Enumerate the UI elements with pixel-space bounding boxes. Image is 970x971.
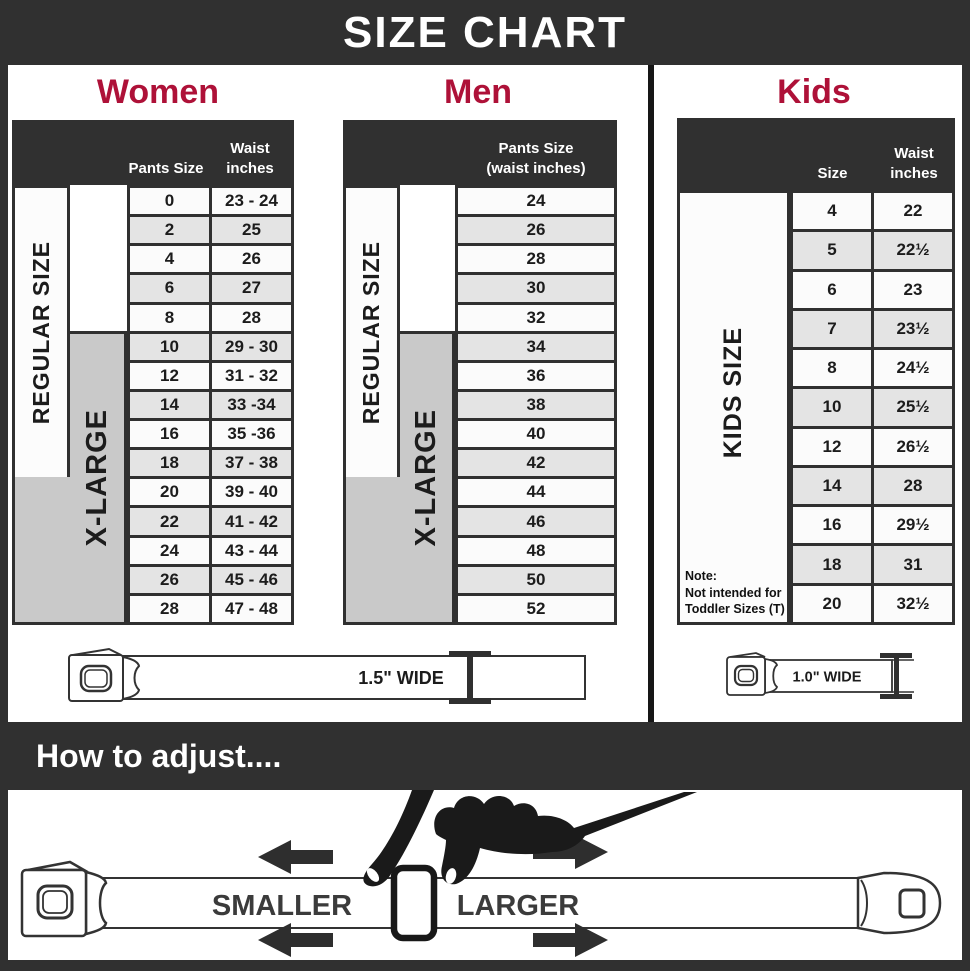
women-table-header: Pants Size Waist inches xyxy=(12,120,294,185)
women-size-table: Pants Size Waist inches REGULAR SIZE X-L… xyxy=(12,120,294,625)
size-cell: 44 xyxy=(458,479,614,505)
size-cell: 7 xyxy=(793,311,871,347)
size-cell: 40 xyxy=(458,421,614,447)
waist-cell: 31 xyxy=(874,546,952,582)
men-pants-size-header: Pants Size (waist inches) xyxy=(455,139,617,178)
kids-size-range-label: KIDS SIZE Note: Not intended for Toddler… xyxy=(677,190,790,625)
size-cell: 42 xyxy=(458,450,614,476)
waist-cell: 23½ xyxy=(874,311,952,347)
size-cell: 2 xyxy=(130,217,209,243)
kids-waist-header: Waist inches xyxy=(875,144,953,183)
belt-adjuster-slider xyxy=(394,868,434,938)
belt-tip xyxy=(858,873,940,933)
size-cell: 12 xyxy=(793,429,871,465)
size-cell: 4 xyxy=(130,246,209,272)
waist-cell: 23 xyxy=(874,272,952,308)
section-divider xyxy=(648,65,654,722)
kids-section: Kids Size Waist inches KIDS SIZE Note: N… xyxy=(654,65,962,722)
waist-cell: 47 - 48 xyxy=(212,596,291,622)
waist-cell: 33 -34 xyxy=(212,392,291,418)
size-cell: 14 xyxy=(793,468,871,504)
kids-size-grid: 422522½623723½824½1025½1226½14281629½183… xyxy=(790,190,955,625)
kids-table-body: KIDS SIZE Note: Not intended for Toddler… xyxy=(677,190,955,625)
waist-cell: 29½ xyxy=(874,507,952,543)
men-table-body: REGULAR SIZE X-LARGE 2426283032343638404… xyxy=(343,185,617,625)
size-cell: 16 xyxy=(793,507,871,543)
size-cell: 48 xyxy=(458,538,614,564)
size-cell: 16 xyxy=(130,421,209,447)
larger-label: LARGER xyxy=(438,888,598,924)
page-title: SIZE CHART xyxy=(0,0,970,65)
waist-cell: 32½ xyxy=(874,586,952,622)
waist-cell: 25 xyxy=(212,217,291,243)
size-cell: 38 xyxy=(458,392,614,418)
women-waist-header: Waist inches xyxy=(208,139,292,178)
women-size-range-labels: REGULAR SIZE X-LARGE xyxy=(12,185,127,625)
size-cell: 24 xyxy=(458,188,614,214)
seatbelt-buckle-icon xyxy=(727,653,777,695)
size-cell: 20 xyxy=(130,479,209,505)
size-cell: 28 xyxy=(130,596,209,622)
size-cell: 18 xyxy=(793,546,871,582)
adult-belt-width-label: 1.5" WIDE xyxy=(358,668,444,688)
waist-cell: 28 xyxy=(874,468,952,504)
regular-size-label: REGULAR SIZE xyxy=(28,241,55,424)
kids-size-label: KIDS SIZE xyxy=(719,327,748,458)
size-cell: 52 xyxy=(458,596,614,622)
size-cell: 34 xyxy=(458,334,614,360)
kids-belt-illustration: 1.0" WIDE xyxy=(722,650,917,702)
kids-size-table: Size Waist inches KIDS SIZE Note: Not in… xyxy=(677,118,955,625)
size-cell: 0 xyxy=(130,188,209,214)
kids-note: Note: Not intended for Toddler Sizes (T) xyxy=(685,568,787,617)
waist-cell: 28 xyxy=(212,305,291,331)
size-cell: 6 xyxy=(793,272,871,308)
waist-cell: 23 - 24 xyxy=(212,188,291,214)
adjust-illustration-panel: SMALLER LARGER xyxy=(8,790,962,960)
adult-belt-illustration: 1.5" WIDE xyxy=(63,643,593,711)
waist-cell: 31 - 32 xyxy=(212,363,291,389)
smaller-label: SMALLER xyxy=(194,888,370,924)
adult-section: Women Men Pants Size Waist inches REGULA… xyxy=(8,65,648,722)
size-cell: 8 xyxy=(793,350,871,386)
size-cell: 18 xyxy=(130,450,209,476)
waist-cell: 29 - 30 xyxy=(212,334,291,360)
size-cell: 50 xyxy=(458,567,614,593)
waist-cell: 25½ xyxy=(874,389,952,425)
men-size-range-labels: REGULAR SIZE X-LARGE xyxy=(343,185,455,625)
size-cell: 14 xyxy=(130,392,209,418)
waist-cell: 39 - 40 xyxy=(212,479,291,505)
size-cell: 24 xyxy=(130,538,209,564)
waist-cell: 45 - 46 xyxy=(212,567,291,593)
regular-size-label: REGULAR SIZE xyxy=(358,241,385,424)
size-cell: 46 xyxy=(458,508,614,534)
xlarge-label: X-LARGE xyxy=(410,409,443,547)
waist-cell: 26 xyxy=(212,246,291,272)
men-table-header: Pants Size (waist inches) xyxy=(343,120,617,185)
waist-cell: 24½ xyxy=(874,350,952,386)
size-cell: 36 xyxy=(458,363,614,389)
men-heading: Men xyxy=(328,73,628,112)
size-cell: 26 xyxy=(458,217,614,243)
size-cell: 12 xyxy=(130,363,209,389)
kids-size-header: Size xyxy=(790,164,875,184)
size-cell: 10 xyxy=(130,334,209,360)
size-cell: 26 xyxy=(130,567,209,593)
size-cell: 30 xyxy=(458,275,614,301)
size-cell: 8 xyxy=(130,305,209,331)
arrow-left-icon xyxy=(258,840,333,874)
size-cell: 6 xyxy=(130,275,209,301)
kids-belt-width-label: 1.0" WIDE xyxy=(793,670,862,686)
waist-cell: 26½ xyxy=(874,429,952,465)
kids-table-header: Size Waist inches xyxy=(677,118,955,190)
women-size-grid: 023 - 242254266278281029 - 301231 - 3214… xyxy=(127,185,294,625)
how-to-adjust-heading: How to adjust.... xyxy=(0,722,970,790)
size-cell: 20 xyxy=(793,586,871,622)
belt-band xyxy=(121,656,585,699)
waist-cell: 35 -36 xyxy=(212,421,291,447)
size-cell: 4 xyxy=(793,193,871,229)
waist-cell: 27 xyxy=(212,275,291,301)
kids-heading: Kids xyxy=(674,73,954,112)
men-size-grid: 242628303234363840424446485052 xyxy=(455,185,617,625)
men-size-table: Pants Size (waist inches) REGULAR SIZE X… xyxy=(343,120,617,625)
women-heading: Women xyxy=(8,73,308,112)
size-cell: 32 xyxy=(458,305,614,331)
women-pants-size-header: Pants Size xyxy=(124,159,208,179)
seatbelt-buckle-icon xyxy=(22,862,106,936)
waist-cell: 43 - 44 xyxy=(212,538,291,564)
waist-cell: 41 - 42 xyxy=(212,508,291,534)
waist-cell: 22 xyxy=(874,193,952,229)
waist-cell: 37 - 38 xyxy=(212,450,291,476)
size-chart-page: SIZE CHART Women Men Pants Size Waist in… xyxy=(0,0,970,971)
adjust-belt-illustration xyxy=(8,790,962,960)
size-cell: 10 xyxy=(793,389,871,425)
size-cell: 28 xyxy=(458,246,614,272)
women-table-body: REGULAR SIZE X-LARGE 023 - 2422542662782… xyxy=(12,185,294,625)
waist-cell: 22½ xyxy=(874,232,952,268)
size-cell: 5 xyxy=(793,232,871,268)
size-cell: 22 xyxy=(130,508,209,534)
xlarge-label: X-LARGE xyxy=(81,409,114,547)
